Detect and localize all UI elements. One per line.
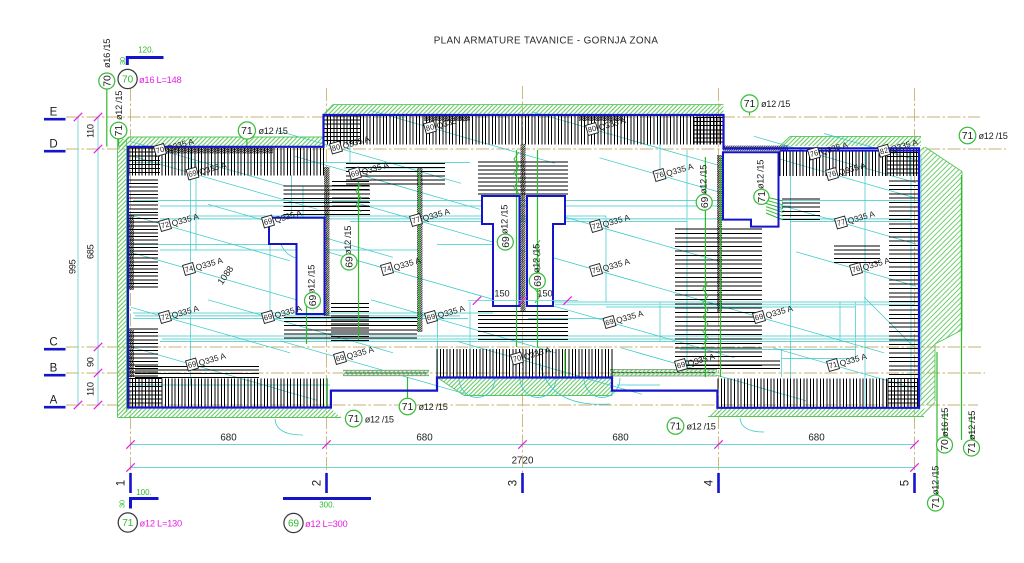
svg-text:ø12 /15: ø12 /15 — [343, 226, 353, 255]
svg-text:ø12 /15: ø12 /15 — [307, 265, 317, 294]
svg-text:ø12 /15: ø12 /15 — [532, 244, 542, 273]
svg-text:E: E — [50, 107, 58, 119]
svg-text:70: 70 — [122, 75, 134, 86]
svg-text:2720: 2720 — [512, 456, 534, 467]
svg-text:ø12 /15: ø12 /15 — [365, 414, 394, 424]
svg-text:ø12 /15: ø12 /15 — [967, 411, 977, 440]
svg-text:680: 680 — [612, 433, 629, 444]
svg-text:A: A — [50, 395, 58, 407]
svg-text:71: 71 — [670, 422, 682, 433]
svg-text:ø16 /15: ø16 /15 — [940, 408, 950, 437]
svg-text:70: 70 — [940, 439, 951, 451]
svg-text:69: 69 — [308, 295, 319, 307]
svg-text:ø12 /15: ø12 /15 — [500, 205, 510, 234]
svg-text:110: 110 — [86, 382, 96, 396]
svg-text:3: 3 — [508, 480, 520, 486]
svg-text:30: 30 — [118, 500, 127, 508]
svg-text:ø12 L=130: ø12 L=130 — [140, 518, 182, 529]
svg-text:C: C — [49, 337, 57, 349]
svg-text:71: 71 — [962, 131, 974, 142]
svg-text:ø12 L=300: ø12 L=300 — [305, 518, 347, 529]
svg-text:69: 69 — [288, 519, 300, 530]
svg-text:71: 71 — [931, 497, 942, 509]
svg-text:PLAN ARMATURE TAVANICE - GORNJ: PLAN ARMATURE TAVANICE - GORNJA ZONA — [434, 36, 659, 47]
svg-text:71: 71 — [744, 99, 756, 110]
svg-text:1: 1 — [116, 480, 128, 486]
svg-text:680: 680 — [416, 433, 433, 444]
svg-text:ø12 /15: ø12 /15 — [979, 131, 1008, 141]
svg-text:69: 69 — [700, 196, 711, 208]
svg-text:120.: 120. — [138, 46, 154, 55]
svg-text:ø12 /15: ø12 /15 — [687, 422, 716, 432]
svg-text:69: 69 — [345, 256, 356, 268]
svg-text:ø12 /15: ø12 /15 — [114, 91, 124, 120]
svg-text:ø12 /15: ø12 /15 — [419, 402, 448, 412]
svg-text:D: D — [49, 139, 57, 151]
svg-text:B: B — [50, 363, 58, 375]
svg-text:680: 680 — [220, 433, 237, 444]
svg-text:5: 5 — [900, 480, 912, 486]
svg-text:680: 680 — [808, 433, 825, 444]
svg-text:ø16 /15: ø16 /15 — [102, 39, 112, 68]
svg-text:300.: 300. — [319, 501, 335, 510]
svg-text:70: 70 — [102, 75, 113, 87]
svg-text:2: 2 — [312, 480, 324, 486]
svg-text:ø12 /15: ø12 /15 — [699, 165, 709, 194]
svg-text:71: 71 — [114, 125, 125, 137]
svg-text:71: 71 — [122, 518, 134, 529]
svg-text:ø12 /15: ø12 /15 — [756, 160, 766, 189]
svg-text:71: 71 — [402, 402, 414, 413]
svg-text:71: 71 — [348, 414, 360, 425]
svg-text:90: 90 — [86, 357, 96, 367]
svg-text:ø12 /15: ø12 /15 — [259, 126, 288, 136]
svg-text:110: 110 — [86, 124, 96, 138]
svg-text:71: 71 — [967, 442, 978, 454]
svg-text:ø12 /15: ø12 /15 — [761, 99, 790, 109]
svg-text:150: 150 — [494, 289, 509, 299]
svg-text:ø12 /15: ø12 /15 — [931, 466, 941, 495]
svg-text:30: 30 — [118, 57, 127, 65]
svg-text:4: 4 — [704, 479, 716, 486]
svg-text:71: 71 — [241, 126, 253, 137]
svg-text:69: 69 — [533, 275, 544, 287]
svg-text:69: 69 — [501, 236, 512, 248]
svg-text:100.: 100. — [136, 488, 152, 497]
svg-text:ø16 L=148: ø16 L=148 — [139, 74, 181, 85]
svg-text:150: 150 — [537, 289, 552, 299]
svg-text:685: 685 — [86, 244, 96, 259]
svg-text:995: 995 — [68, 259, 78, 274]
svg-text:71: 71 — [757, 191, 768, 203]
